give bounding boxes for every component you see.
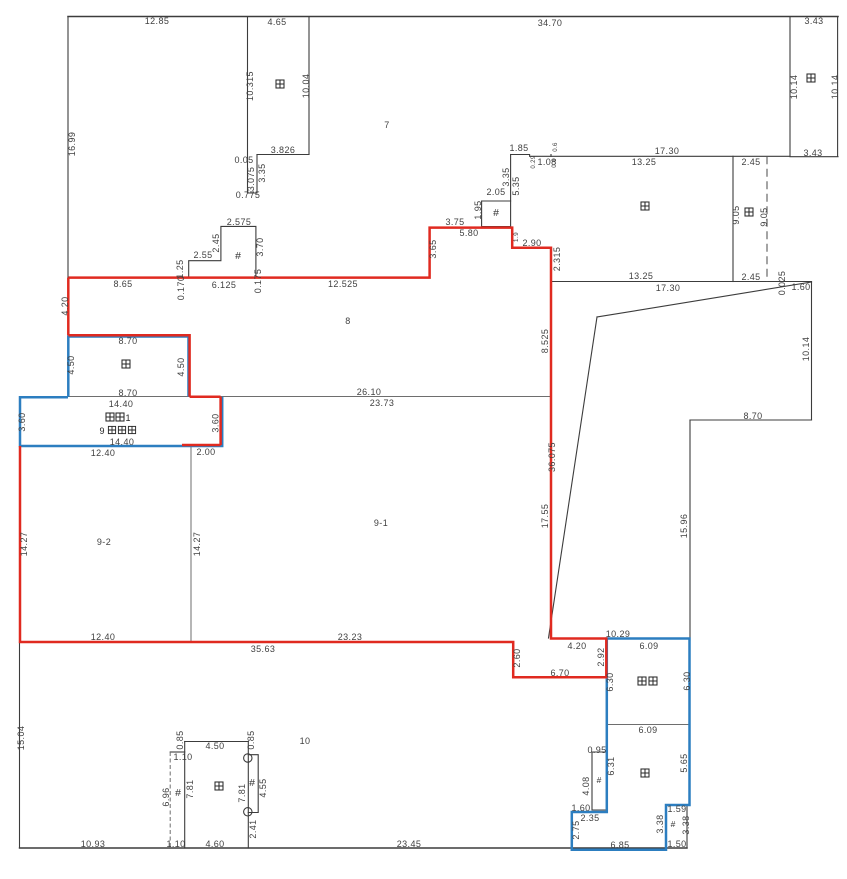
- svg-text:2.92: 2.92: [596, 647, 606, 666]
- svg-text:12.40: 12.40: [91, 448, 116, 458]
- svg-text:8.65: 8.65: [113, 279, 132, 289]
- svg-text:#: #: [249, 777, 255, 789]
- svg-text:2.60: 2.60: [512, 648, 522, 667]
- svg-text:4.20: 4.20: [567, 641, 586, 651]
- svg-text:10.14: 10.14: [830, 75, 840, 100]
- svg-text:2.90: 2.90: [522, 238, 541, 248]
- svg-text:7.81: 7.81: [237, 783, 247, 802]
- svg-text:4.65: 4.65: [267, 17, 286, 27]
- svg-text:15.04: 15.04: [16, 726, 26, 751]
- svg-text:2.05: 2.05: [486, 187, 505, 197]
- svg-text:#: #: [235, 250, 241, 262]
- svg-text:6.70: 6.70: [550, 668, 569, 678]
- svg-text:3.826: 3.826: [271, 145, 296, 155]
- svg-text:9-1: 9-1: [374, 518, 388, 528]
- svg-text:6.125: 6.125: [212, 280, 237, 290]
- svg-text:4.50: 4.50: [66, 355, 76, 374]
- svg-text:2.45: 2.45: [741, 272, 760, 282]
- svg-text:1: 1: [125, 413, 130, 423]
- svg-text:3.35: 3.35: [501, 167, 511, 186]
- svg-text:10.93: 10.93: [81, 839, 106, 849]
- svg-text:7.81: 7.81: [185, 779, 195, 798]
- svg-text:34.70: 34.70: [538, 18, 563, 28]
- svg-text:1.9: 1.9: [513, 232, 520, 242]
- svg-text:2.315: 2.315: [552, 247, 562, 272]
- svg-text:3.43: 3.43: [803, 148, 822, 158]
- svg-text:14.27: 14.27: [192, 532, 202, 557]
- svg-text:17.30: 17.30: [655, 146, 680, 156]
- svg-text:0.85: 0.85: [175, 730, 185, 749]
- svg-text:2.00: 2.00: [196, 447, 215, 457]
- svg-text:3.60: 3.60: [211, 413, 221, 432]
- svg-text:23.23: 23.23: [338, 632, 363, 642]
- svg-text:2.41: 2.41: [248, 819, 258, 838]
- svg-text:4.08: 4.08: [581, 776, 591, 795]
- svg-text:2.45: 2.45: [211, 233, 221, 252]
- svg-text:10.29: 10.29: [606, 629, 631, 639]
- svg-text:0.025: 0.025: [777, 271, 787, 296]
- svg-text:6.96: 6.96: [161, 787, 171, 806]
- svg-text:3.65: 3.65: [428, 239, 438, 258]
- svg-text:1.10: 1.10: [166, 839, 185, 849]
- svg-text:0.6: 0.6: [552, 158, 558, 168]
- svg-text:12.525: 12.525: [328, 279, 358, 289]
- svg-text:0.175: 0.175: [253, 269, 263, 294]
- svg-text:#: #: [671, 819, 676, 829]
- svg-text:8.525: 8.525: [540, 329, 550, 354]
- svg-text:8.70: 8.70: [118, 336, 137, 346]
- svg-text:4.55: 4.55: [258, 778, 268, 797]
- svg-text:14.40: 14.40: [109, 399, 134, 409]
- svg-text:9: 9: [99, 426, 104, 436]
- svg-text:3.60: 3.60: [17, 412, 27, 431]
- svg-text:8: 8: [345, 316, 350, 326]
- svg-text:4.50: 4.50: [205, 741, 224, 751]
- svg-text:35.63: 35.63: [251, 644, 276, 654]
- svg-text:10.04: 10.04: [301, 74, 311, 99]
- svg-text:9.05: 9.05: [731, 205, 741, 224]
- svg-text:6.09: 6.09: [638, 725, 657, 735]
- svg-text:1.10: 1.10: [173, 752, 192, 762]
- svg-text:1.50: 1.50: [667, 839, 686, 849]
- svg-text:8.70: 8.70: [743, 411, 762, 421]
- svg-text:23.73: 23.73: [370, 398, 395, 408]
- svg-text:2.55: 2.55: [193, 250, 212, 260]
- svg-text:10.14: 10.14: [801, 337, 811, 362]
- svg-text:6.09: 6.09: [639, 641, 658, 651]
- svg-text:1.59: 1.59: [667, 804, 686, 814]
- svg-text:3.75: 3.75: [445, 217, 464, 227]
- svg-text:0.170: 0.170: [176, 276, 186, 301]
- svg-text:36.075: 36.075: [547, 442, 557, 472]
- svg-text:4.60: 4.60: [205, 839, 224, 849]
- svg-text:#: #: [493, 207, 499, 219]
- svg-text:2.75: 2.75: [571, 820, 581, 839]
- svg-text:1.60: 1.60: [791, 282, 810, 292]
- svg-text:1.25: 1.25: [175, 259, 185, 278]
- svg-text:1.85: 1.85: [509, 143, 528, 153]
- svg-text:10.14: 10.14: [789, 75, 799, 100]
- svg-text:4.20: 4.20: [60, 296, 70, 315]
- svg-text:2.575: 2.575: [227, 217, 252, 227]
- svg-text:3.35: 3.35: [257, 163, 267, 182]
- svg-text:10: 10: [300, 736, 311, 746]
- svg-text:15.96: 15.96: [679, 514, 689, 539]
- svg-text:3.70: 3.70: [255, 237, 265, 256]
- svg-text:12.85: 12.85: [145, 16, 170, 26]
- svg-text:5.80: 5.80: [459, 228, 478, 238]
- svg-text:14.27: 14.27: [19, 532, 29, 557]
- svg-text:0.05: 0.05: [234, 155, 253, 165]
- svg-text:0.6: 0.6: [553, 142, 559, 152]
- svg-text:12.40: 12.40: [91, 632, 116, 642]
- svg-text:3.075: 3.075: [246, 167, 256, 192]
- svg-text:#: #: [175, 787, 181, 799]
- svg-text:5.35: 5.35: [511, 176, 521, 195]
- svg-text:6.31: 6.31: [606, 756, 616, 775]
- svg-text:0.95: 0.95: [587, 745, 606, 755]
- svg-text:8.70: 8.70: [118, 388, 137, 398]
- svg-text:#: #: [597, 775, 602, 785]
- svg-text:17.30: 17.30: [656, 283, 681, 293]
- svg-text:5.65: 5.65: [679, 753, 689, 772]
- svg-text:10.315: 10.315: [245, 71, 255, 101]
- svg-text:0.29: 0.29: [531, 155, 537, 169]
- svg-text:2.35: 2.35: [580, 813, 599, 823]
- svg-text:2.45: 2.45: [741, 157, 760, 167]
- svg-text:13.25: 13.25: [632, 157, 657, 167]
- svg-text:14.40: 14.40: [110, 437, 135, 447]
- svg-text:23.45: 23.45: [397, 839, 422, 849]
- svg-text:1.95: 1.95: [473, 200, 483, 219]
- svg-text:9.05: 9.05: [759, 207, 769, 226]
- svg-text:7: 7: [384, 120, 389, 130]
- svg-text:6.85: 6.85: [610, 840, 629, 850]
- svg-text:1.60: 1.60: [571, 803, 590, 813]
- svg-text:0.85: 0.85: [246, 730, 256, 749]
- svg-text:6.30: 6.30: [605, 672, 615, 691]
- svg-text:3.38: 3.38: [681, 815, 691, 834]
- svg-text:3.43: 3.43: [804, 16, 823, 26]
- svg-text:17.55: 17.55: [540, 504, 550, 529]
- svg-text:9-2: 9-2: [97, 537, 111, 547]
- svg-text:3.38: 3.38: [655, 814, 665, 833]
- svg-text:16.99: 16.99: [67, 132, 77, 157]
- svg-text:6.30: 6.30: [682, 671, 692, 690]
- svg-text:4.50: 4.50: [176, 357, 186, 376]
- svg-text:26.10: 26.10: [357, 387, 382, 397]
- svg-text:13.25: 13.25: [629, 271, 654, 281]
